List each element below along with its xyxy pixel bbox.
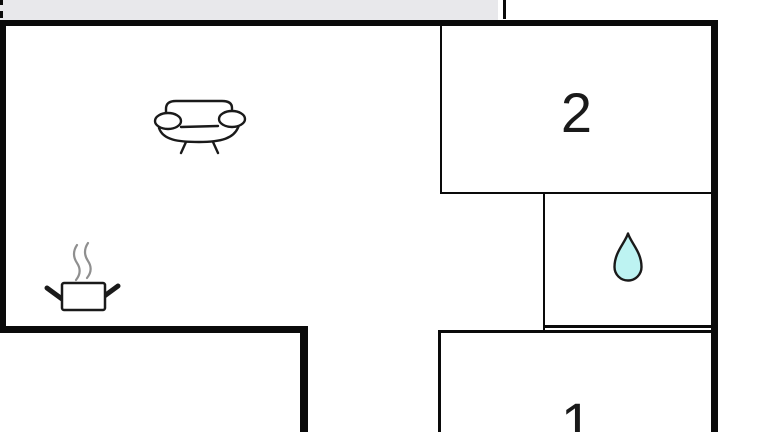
wall-top (0, 20, 718, 26)
top-gray-strip (0, 0, 498, 20)
steam-line (74, 245, 80, 280)
bedroom-1-label: 1 (441, 395, 712, 432)
wall-bedroom1-top (438, 330, 712, 333)
water-drop-icon (612, 231, 644, 284)
cropped-wall-stub (503, 0, 506, 19)
wall-left (0, 20, 6, 333)
wall-right (711, 20, 718, 432)
wall-bathroom-left (543, 194, 545, 332)
wall-mid-vertical (300, 326, 308, 432)
cooking-pot-icon (42, 238, 122, 316)
cropped-wall-tick (0, 11, 3, 18)
floor-plan: 2 1 (0, 0, 768, 432)
cropped-wall-tick (0, 0, 3, 5)
bedroom-2-label: 2 (441, 85, 712, 141)
wall-bathroom-bottom (543, 325, 712, 328)
wall-bedroom2-bottom (440, 192, 712, 194)
steam-line (85, 243, 91, 278)
sofa-icon (150, 95, 248, 157)
wall-kitchen-bottom (0, 326, 308, 333)
